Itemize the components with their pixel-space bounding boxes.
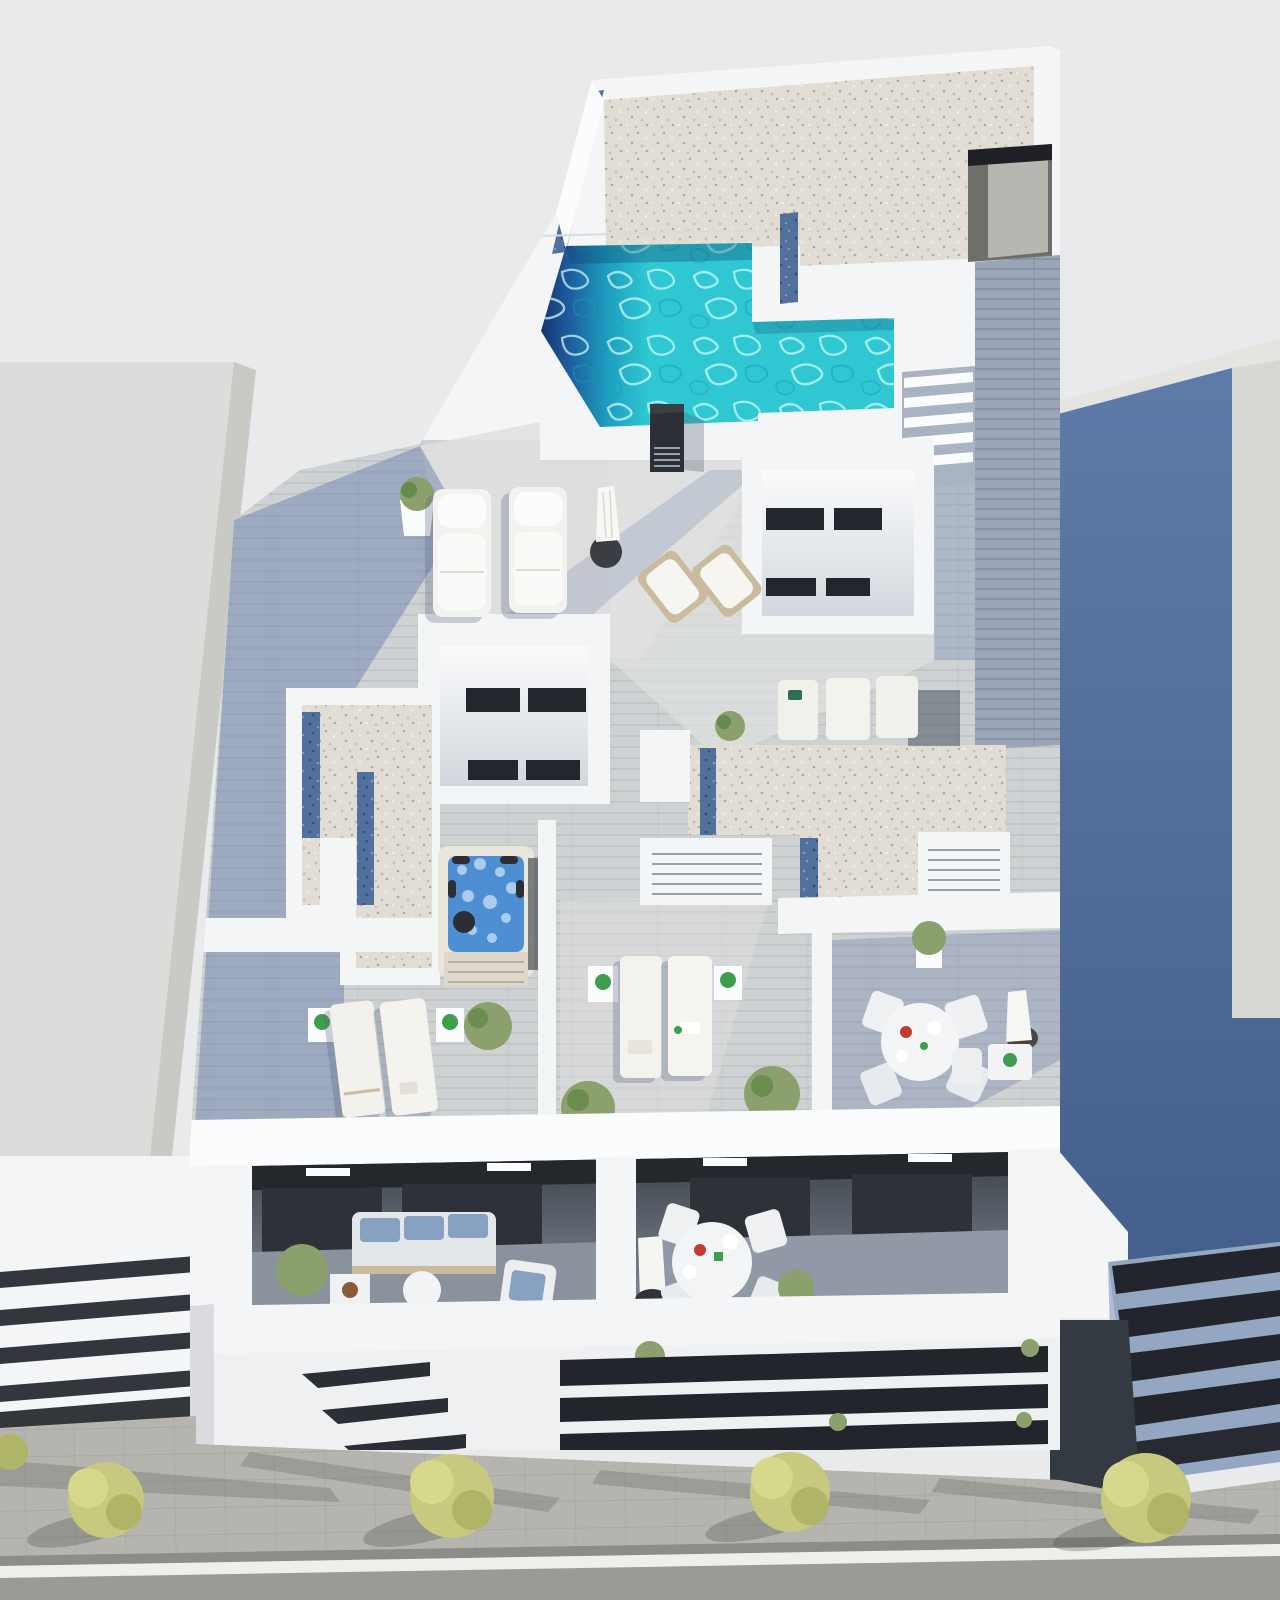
walkway-planks (975, 255, 1060, 750)
tray (342, 1282, 358, 1298)
potted-plant (715, 711, 745, 741)
lightwell-window (766, 508, 824, 530)
facade-plant (1016, 1412, 1032, 1428)
render-canvas (0, 0, 1280, 1600)
flat-lounger (613, 956, 662, 1083)
hot-tub (438, 846, 538, 986)
padded-lounger (501, 487, 567, 619)
lightwell-window (468, 760, 518, 780)
right-neighbour-building (1050, 338, 1280, 1490)
hot-tub-side (528, 858, 538, 970)
vent-shadow (684, 412, 704, 472)
access-door (988, 156, 1048, 258)
lightwell-window (766, 578, 816, 596)
planter (912, 921, 946, 968)
gravel-blue-strip (700, 748, 716, 835)
scene (0, 0, 1280, 1600)
balcony-plant (276, 1244, 328, 1296)
shrub-shade (567, 1089, 589, 1111)
flat-lounger (661, 956, 712, 1081)
table-item (920, 1042, 928, 1050)
table-plant (595, 974, 611, 990)
plate (722, 1234, 738, 1250)
table-item (714, 1252, 723, 1261)
balcony-end-wall (1008, 1148, 1060, 1302)
balcony-level (190, 1106, 1060, 1321)
right-roof (1232, 360, 1280, 1018)
fruit-bowl (694, 1244, 706, 1256)
table-plant (720, 972, 736, 988)
terrace-wall (190, 918, 440, 952)
fruit-bowl (900, 1026, 912, 1038)
lightwell-window (826, 578, 870, 596)
gravel-step (320, 838, 356, 905)
lightwell-centre (418, 614, 610, 804)
gravel-blue-strip (357, 772, 374, 905)
table-plant (1003, 1053, 1017, 1067)
lightwell-window (528, 688, 586, 712)
round-table (672, 1222, 752, 1302)
vent-body (650, 404, 684, 472)
pergola-box (640, 730, 690, 802)
shrub-shade (751, 1075, 773, 1097)
lightwell-window (526, 760, 580, 780)
lightwell-window (834, 508, 882, 530)
gravel-blue-strip (780, 212, 798, 304)
table-plant (442, 1014, 458, 1030)
plate (927, 1021, 941, 1035)
sofa-cushions (360, 1214, 488, 1242)
gravel-blue-strip (302, 712, 320, 838)
lightwell-upper (742, 438, 934, 634)
shrub (464, 1002, 512, 1050)
gravel-blue-strip (800, 838, 818, 898)
bottom-left-neighbour-building (0, 1156, 196, 1436)
stair-parapet (898, 282, 975, 378)
plate (683, 1265, 697, 1279)
shrub-shade (468, 1008, 488, 1028)
hot-tub-steps (444, 952, 528, 986)
divider-wall (538, 820, 556, 1142)
padded-lounger (425, 489, 491, 623)
balcony-divider (596, 1156, 636, 1304)
lightwell-window (466, 688, 520, 712)
facade-plant (829, 1413, 847, 1431)
chair (952, 1048, 982, 1086)
flat-sunbed-row (778, 676, 918, 740)
round-table (881, 1003, 959, 1081)
facade-plant (1021, 1339, 1039, 1357)
plate (896, 1050, 908, 1062)
